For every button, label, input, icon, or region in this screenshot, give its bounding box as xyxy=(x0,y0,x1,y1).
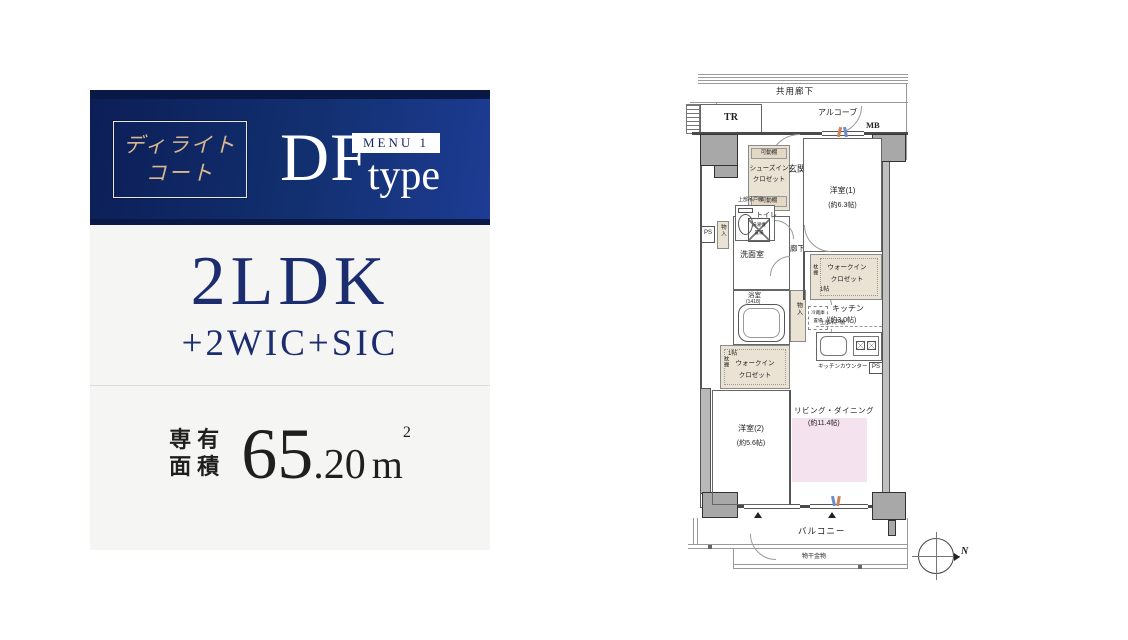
balcony-fence xyxy=(688,548,908,549)
wic-label-1: ウォークイン xyxy=(814,264,880,272)
area-int: 65 xyxy=(241,418,313,490)
wic-size-label: 1帖 xyxy=(728,351,737,359)
floorplan-page: { "panel": { "brand_line1": "ディライト", "br… xyxy=(0,0,1128,640)
area-unit-m: m xyxy=(372,442,403,487)
balcony-fence-right xyxy=(907,518,908,568)
bedroom1-size-label: (約6.3帖) xyxy=(803,202,882,211)
balcony-fence-outer xyxy=(733,564,908,565)
area-row: 専有 面積 65 .20 m2 xyxy=(90,418,490,490)
site-boundary-lines xyxy=(698,74,908,85)
balcony-label: バルコニー xyxy=(798,526,845,537)
area-unit-sup2: 2 xyxy=(403,424,411,441)
entry-marker-icon xyxy=(828,512,836,518)
fence-post xyxy=(708,545,712,549)
column-bottom-right xyxy=(872,492,906,520)
type-word: type xyxy=(368,155,440,197)
area-unit: m2 xyxy=(372,445,411,485)
header-band: ディライト コート DF MENU 1 type xyxy=(90,90,490,225)
movable-shelf-label: 可動棚 xyxy=(751,150,787,157)
wall-right-thick xyxy=(882,160,890,494)
wic-label-2: クロゼット xyxy=(722,372,788,380)
door-arc-corridor xyxy=(806,78,862,134)
burner-icon xyxy=(856,341,865,350)
type-group: MENU 1 type xyxy=(352,133,440,197)
brand-name-line1: ディライト xyxy=(123,132,237,159)
info-panel: 2LDK +2WIC+SIC 専有 面積 65 .20 m2 xyxy=(90,225,490,550)
shoes-closet-label-2: クロゼット xyxy=(749,176,789,184)
column-bottom-right-stub xyxy=(888,520,896,536)
kitchen-counter-label: キッチンカウンター xyxy=(818,364,868,371)
balcony-fence-step xyxy=(733,548,734,568)
pipe-space-label: PS xyxy=(869,364,883,372)
shoes-closet-label-1: シューズイン xyxy=(749,165,789,173)
upper-cabinet-line xyxy=(816,326,882,327)
balcony-fence-left xyxy=(693,518,694,545)
site-boundary-right xyxy=(906,84,907,160)
toilet-tank xyxy=(738,208,753,213)
area-dec: .20 xyxy=(313,444,366,486)
storage-label: 物入 xyxy=(794,302,802,316)
shelf-label: 枕棚 xyxy=(723,356,729,368)
kitchen-sink xyxy=(820,336,847,356)
fridge-label-1: 冷蔵庫 xyxy=(808,310,828,316)
washer-label-1: 洗濯機 xyxy=(748,222,770,228)
compass-crosshair-v xyxy=(936,532,937,580)
wic-label-2: クロゼット xyxy=(814,276,880,284)
area-label-line1: 専有 xyxy=(169,427,225,454)
pipe-space-label: PS xyxy=(701,230,715,238)
meter-box-label: MB xyxy=(866,120,880,131)
compass-north-label: N xyxy=(961,546,968,559)
wall-left-thick xyxy=(700,388,711,494)
compass-arrow-icon xyxy=(954,553,960,561)
bathtub-inner xyxy=(743,308,780,338)
kitchen-label: キッチン xyxy=(832,304,864,314)
area-label-line2: 面積 xyxy=(169,454,225,481)
washroom-label: 洗面室 xyxy=(740,250,764,260)
bedroom2-size-label: (約5.6帖) xyxy=(712,440,790,449)
balcony-fence-left xyxy=(697,518,698,545)
column-top-left xyxy=(700,134,738,166)
upper-cabinet-label: 上部吊戸棚 xyxy=(738,197,763,203)
wall-bed2-ld xyxy=(789,390,791,505)
brand-box: ディライト コート xyxy=(113,121,247,198)
wic-label-1: ウォークイン xyxy=(722,360,788,368)
entry-marker-icon xyxy=(754,512,762,518)
balcony-fence xyxy=(688,544,908,545)
menu-badge: MENU 1 xyxy=(352,133,440,153)
panel-divider xyxy=(90,385,490,386)
wall-hall-kitchen xyxy=(803,252,805,300)
brand-name-line2: コート xyxy=(146,160,215,187)
layout-type: 2LDK xyxy=(90,247,490,317)
wic-size-label: 1帖 xyxy=(820,287,829,295)
fence-post xyxy=(858,565,862,569)
burner-icon xyxy=(867,341,876,350)
area-label: 専有 面積 xyxy=(169,427,225,481)
balcony-fence-outer xyxy=(733,568,908,569)
wall-hatch xyxy=(686,104,700,134)
living-dining-label: リビング・ダイニング xyxy=(794,406,874,415)
storage-label: 物入 xyxy=(719,224,726,237)
bedroom2-label: 洋室(2) xyxy=(712,424,790,434)
common-corridor-label: 共用廊下 xyxy=(776,86,814,97)
corridor-line xyxy=(690,102,908,103)
header-top-stripe xyxy=(90,90,490,99)
alcove-label: アルコーブ xyxy=(818,108,857,118)
shelf-label: 枕棚 xyxy=(812,264,818,276)
column-top-left-stub xyxy=(714,165,738,178)
living-dining-size-label: (約11.4帖) xyxy=(808,420,840,429)
bedroom1-label: 洋室(1) xyxy=(803,186,882,196)
floorplan-diagram: 共用廊下 TR アルコーブ MB 可動棚 可動棚 シューズイン クロゼット 玄関… xyxy=(660,68,980,608)
area-value: 65 .20 m2 xyxy=(241,418,411,490)
layout-type-sub: +2WIC+SIC xyxy=(90,325,490,362)
drying-fixture-label: 物干金物 xyxy=(802,554,826,562)
washer-label-2: 置場 xyxy=(748,230,770,236)
trunk-room-label: TR xyxy=(700,112,762,125)
